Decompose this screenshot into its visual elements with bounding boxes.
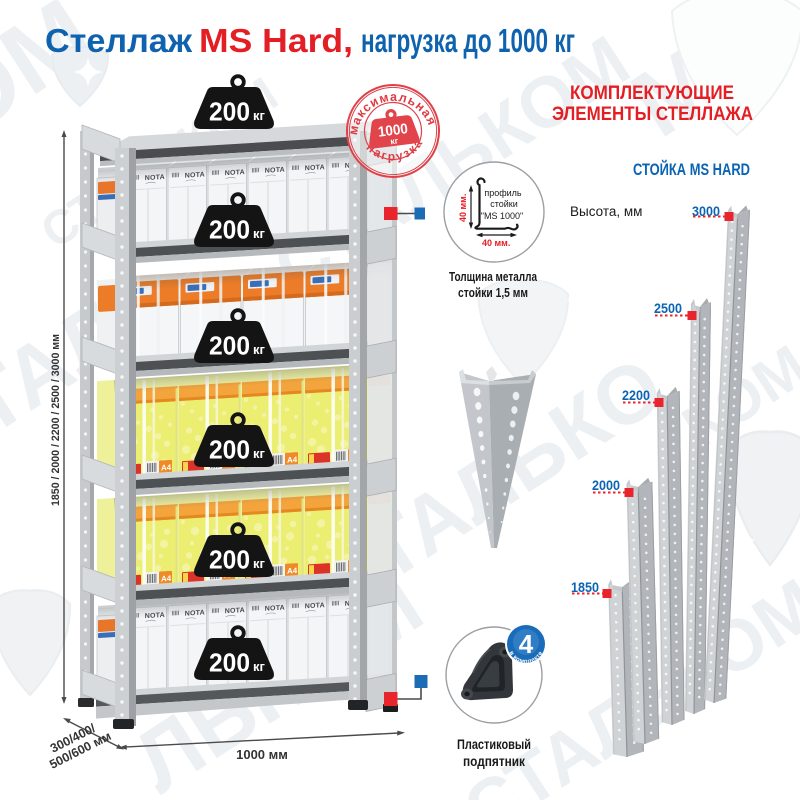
svg-text:стойки: стойки: [490, 199, 518, 209]
svg-text:нагрузка до 1000 кг: нагрузка до 1000 кг: [361, 22, 575, 59]
svg-text:A4: A4: [161, 463, 172, 473]
svg-text:2000: 2000: [592, 478, 620, 493]
svg-text:"MS 1000": "MS 1000": [481, 211, 523, 221]
svg-text:1850: 1850: [571, 580, 599, 595]
svg-text:40 мм.: 40 мм.: [458, 194, 468, 222]
svg-text:СТОЙКА MS HARD: СТОЙКА MS HARD: [633, 160, 750, 179]
svg-text:A4: A4: [161, 574, 172, 584]
svg-text:1000 мм: 1000 мм: [236, 747, 288, 762]
svg-text:стойки 1,5 мм: стойки 1,5 мм: [458, 286, 528, 300]
svg-text:профиль: профиль: [484, 188, 522, 198]
svg-text:Пластиковый: Пластиковый: [457, 737, 531, 752]
svg-text:2500: 2500: [654, 301, 682, 316]
svg-text:Высота, мм: Высота, мм: [570, 204, 642, 219]
svg-text:Стеллаж: Стеллаж: [45, 22, 193, 59]
svg-text:4: 4: [519, 629, 534, 659]
svg-text:3000: 3000: [692, 204, 720, 219]
svg-text:40 мм.: 40 мм.: [482, 238, 510, 248]
svg-text:A4: A4: [287, 455, 298, 465]
svg-text:1850 / 2000 / 2200 / 2500 / 30: 1850 / 2000 / 2200 / 2500 / 3000 мм: [50, 334, 62, 506]
svg-text:КОМПЛЕКТУЮЩИЕ: КОМПЛЕКТУЮЩИЕ: [570, 82, 734, 104]
svg-text:MS Hard,: MS Hard,: [199, 22, 353, 59]
svg-text:ЭЛЕМЕНТЫ СТЕЛЛАЖА: ЭЛЕМЕНТЫ СТЕЛЛАЖА: [552, 103, 753, 125]
svg-text:A4: A4: [287, 566, 298, 576]
svg-text:подпятник: подпятник: [463, 754, 525, 769]
svg-text:Толщина металла: Толщина металла: [449, 270, 538, 284]
svg-text:2200: 2200: [622, 388, 650, 403]
